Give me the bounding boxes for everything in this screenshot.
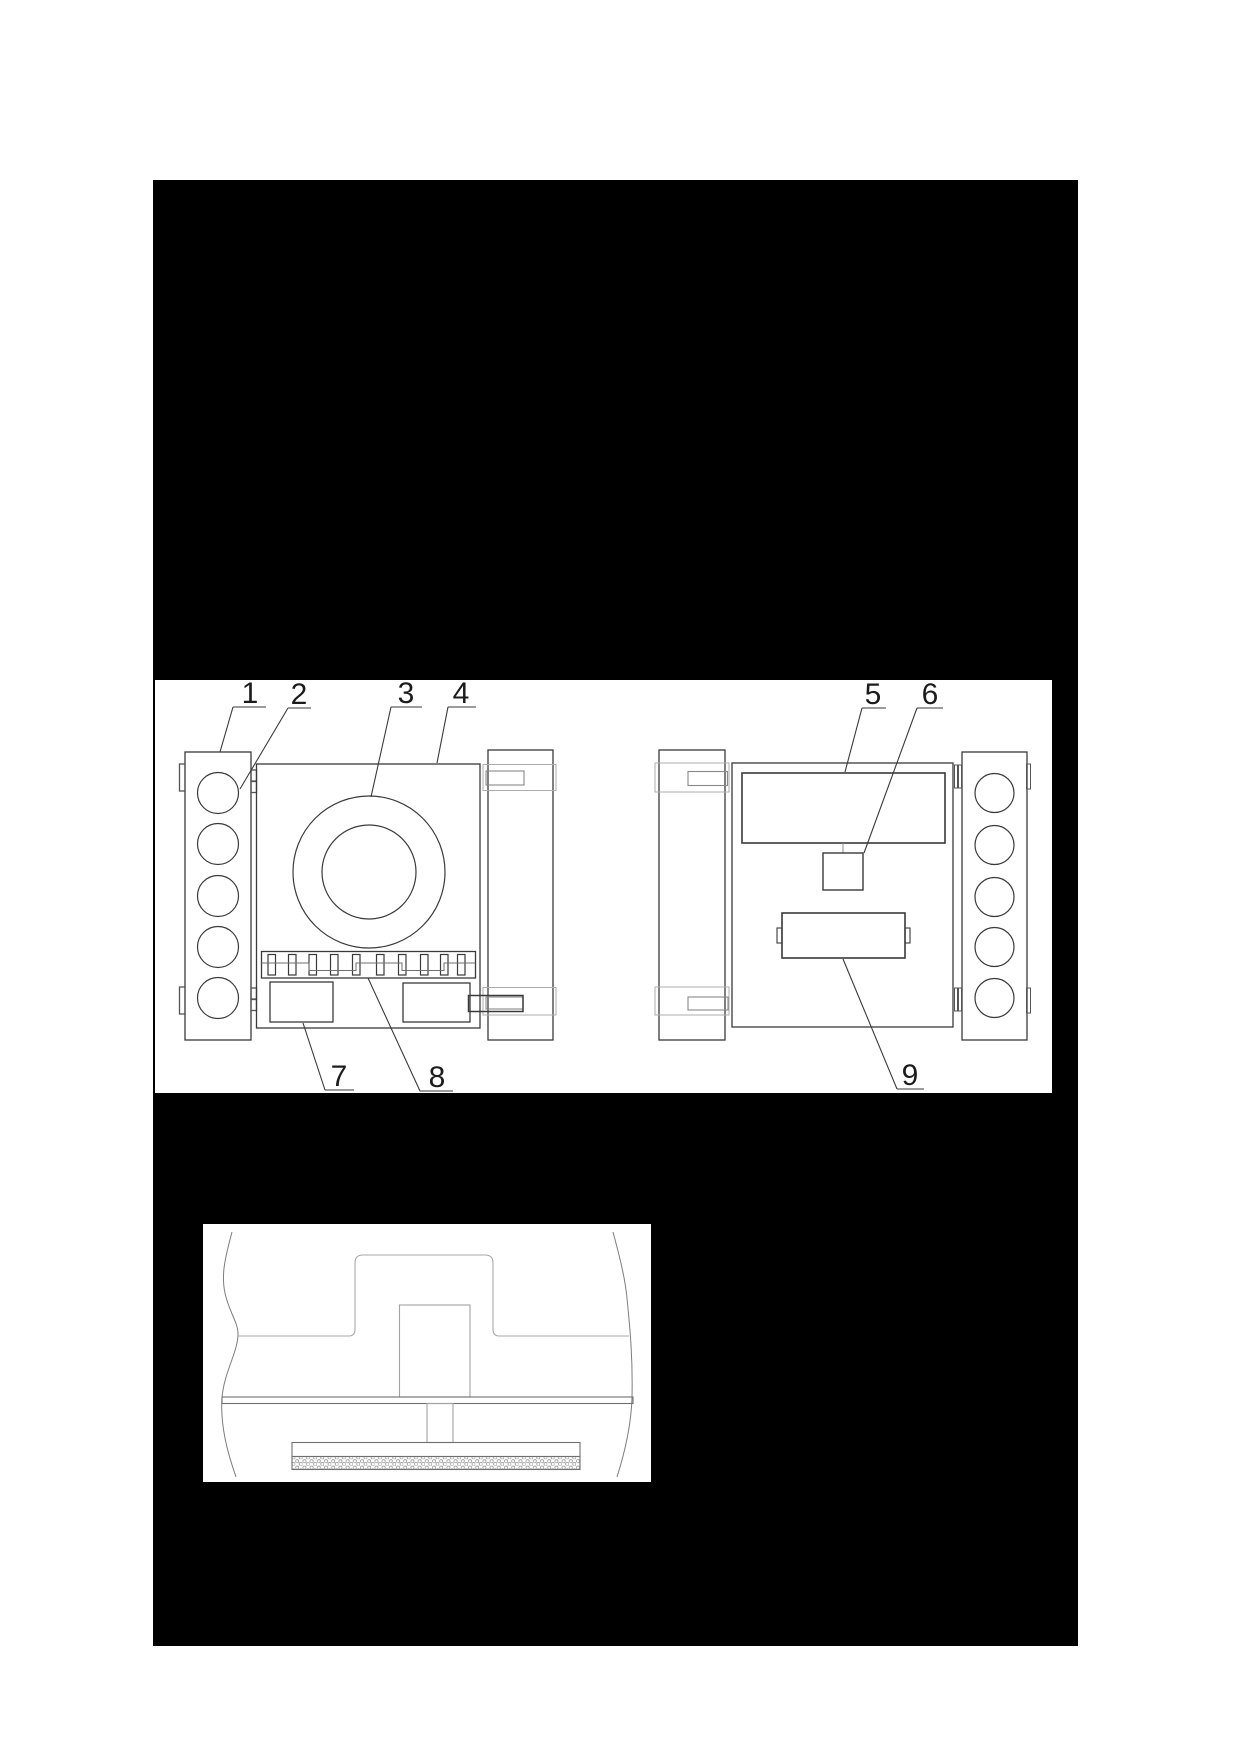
ref-label-text: 5 xyxy=(865,678,882,711)
ref-label-text: 4 xyxy=(453,677,470,710)
ref-label-text: 9 xyxy=(902,1059,919,1092)
figure-panel-detail xyxy=(203,1224,651,1482)
ref-label-text: 2 xyxy=(291,678,308,711)
textured-pad-strip xyxy=(292,1457,580,1470)
ref-label-text: 3 xyxy=(398,677,415,710)
ref-label-text: 8 xyxy=(429,1061,446,1094)
ref-label-text: 7 xyxy=(331,1060,348,1093)
patent-figure-canvas: 1 2 3 4 5 6 7 xyxy=(0,0,1240,1754)
ref-label-text: 6 xyxy=(922,678,939,711)
ref-label-text: 1 xyxy=(242,677,259,710)
figure-panel-top xyxy=(155,680,1052,1093)
